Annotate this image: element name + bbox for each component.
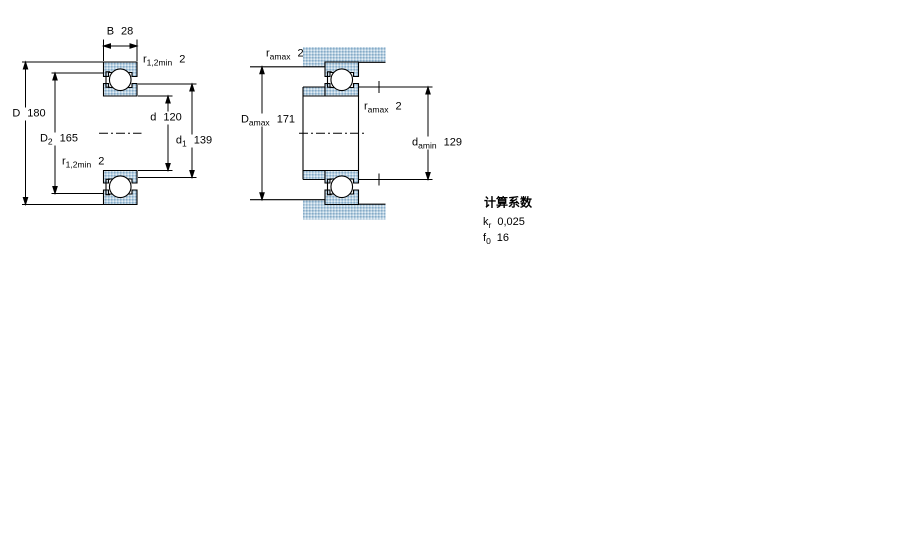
- dim-value: 180: [27, 108, 45, 120]
- arrowhead: [130, 44, 137, 48]
- dim-label-d: d120: [148, 112, 183, 125]
- housing-shoulder-bottom: [303, 200, 325, 205]
- bearing-section-bottom: [104, 171, 138, 205]
- dim-subscript: amax: [368, 105, 389, 115]
- dim-value: 2: [98, 156, 104, 168]
- factor-value: 16: [497, 232, 509, 244]
- dim-subscript: amin: [418, 141, 436, 151]
- dim-label-B: B28: [105, 26, 136, 39]
- arrowhead: [104, 44, 111, 48]
- dim-label-ramax-mid: ramax2: [362, 101, 404, 114]
- factor-subscript: 0: [486, 236, 491, 246]
- dim-value: 139: [194, 135, 212, 147]
- arrowhead: [426, 173, 430, 180]
- factor-value: 0,025: [497, 216, 525, 228]
- arrowhead: [260, 193, 264, 200]
- housing-block-top: [303, 47, 386, 62]
- dim-symbol: B: [107, 26, 114, 38]
- factor-symbol: k: [483, 216, 489, 228]
- dim-subscript: 2: [48, 137, 53, 147]
- arrowhead: [426, 87, 430, 94]
- dim-symbol: D: [12, 108, 20, 120]
- arrowhead: [190, 171, 194, 178]
- dim-symbol: d: [150, 112, 156, 124]
- housing-shoulder-top: [303, 62, 325, 67]
- arrowhead: [23, 62, 27, 69]
- dim-value: 2: [179, 54, 185, 66]
- shaft-shoulder-bottom: [303, 171, 325, 180]
- arrowhead: [53, 187, 57, 194]
- arrowhead: [260, 67, 264, 74]
- arrowhead: [166, 96, 170, 103]
- dim-label-r12min-top: r1,2min2: [141, 54, 187, 67]
- factor-subscript: r: [489, 220, 492, 230]
- dim-subscript: amax: [270, 52, 291, 62]
- dim-label-r12min-bottom: r1,2min2: [60, 156, 106, 169]
- arrowhead: [23, 198, 27, 205]
- shaft-shoulder-top: [303, 87, 325, 96]
- right-mounting-drawing: [250, 47, 386, 220]
- housing-block-bottom: [303, 204, 386, 219]
- dim-label-damin: damin129: [410, 137, 464, 150]
- arrowhead: [190, 84, 194, 91]
- arrowhead: [53, 73, 57, 80]
- dim-value: 171: [277, 114, 295, 126]
- bearing-section-bottom: [325, 171, 359, 205]
- dim-label-D2: D2165: [38, 133, 80, 146]
- dim-symbol: D: [241, 114, 249, 126]
- calculation-factors-title: 计算系数: [484, 194, 532, 211]
- dim-label-D: D180: [10, 108, 47, 121]
- dim-value: 120: [163, 112, 181, 124]
- bearing-dimension-diagram: B28 r1,2min2 D180 D2165 d120 d1139 r1,2m…: [0, 0, 900, 560]
- dim-value: 129: [444, 137, 462, 149]
- dim-subscript: 1: [182, 139, 187, 149]
- factor-row-f0: f016: [483, 232, 509, 244]
- dim-value: 2: [395, 101, 401, 113]
- dim-subscript: amax: [249, 118, 270, 128]
- arrowhead: [166, 164, 170, 171]
- technical-drawing-svg: [0, 0, 900, 560]
- dim-subscript: 1,2min: [66, 160, 92, 170]
- dim-label-d1: d1139: [174, 135, 214, 148]
- bearing-section-top: [325, 62, 359, 96]
- dim-value: 2: [297, 48, 303, 60]
- bearing-section-top: [104, 62, 138, 96]
- dim-subscript: 1,2min: [147, 58, 173, 68]
- dim-value: 165: [60, 133, 78, 145]
- dim-value: 28: [121, 26, 133, 38]
- dim-label-Damax: Damax171: [239, 114, 297, 127]
- dim-symbol: D: [40, 133, 48, 145]
- left-bearing-cross-section: [99, 62, 142, 205]
- dim-label-ramax-top: ramax2: [264, 48, 306, 61]
- factor-row-kr: kr0,025: [483, 216, 525, 228]
